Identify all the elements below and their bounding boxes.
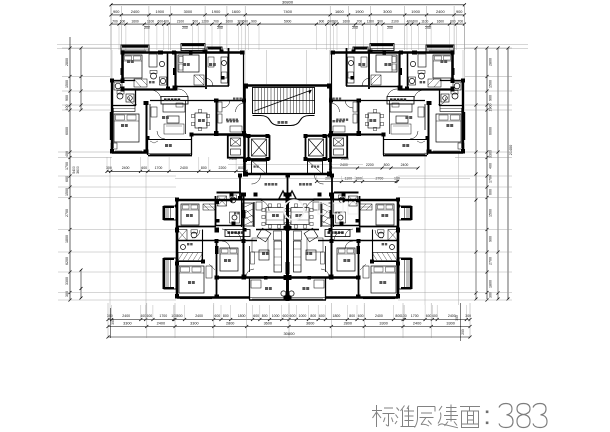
svg-text:1600: 1600 — [335, 9, 344, 14]
svg-text:900: 900 — [489, 236, 493, 242]
svg-text:6000: 6000 — [489, 127, 493, 135]
svg-text:900: 900 — [65, 95, 69, 101]
svg-text:300: 300 — [455, 315, 459, 321]
svg-text:200: 200 — [182, 26, 188, 30]
svg-text:300: 300 — [333, 19, 339, 23]
svg-text:400: 400 — [140, 314, 146, 318]
svg-text:2400: 2400 — [340, 163, 348, 167]
svg-text:600: 600 — [141, 166, 147, 170]
svg-text:1600: 1600 — [131, 19, 139, 23]
svg-text:1100: 1100 — [147, 19, 154, 23]
svg-text:2200: 2200 — [366, 163, 374, 167]
svg-text:3300: 3300 — [489, 150, 493, 158]
svg-text:3000: 3000 — [184, 9, 193, 14]
svg-text:600: 600 — [146, 314, 152, 318]
svg-text:2100: 2100 — [391, 19, 399, 23]
svg-text:1100: 1100 — [421, 19, 428, 23]
svg-text:700: 700 — [112, 19, 118, 23]
svg-text:2400: 2400 — [122, 166, 130, 170]
svg-text:6200: 6200 — [65, 257, 69, 265]
svg-text:2800: 2800 — [489, 58, 493, 66]
svg-text:300: 300 — [489, 292, 493, 298]
svg-text:600: 600 — [412, 19, 418, 23]
svg-text:600: 600 — [214, 314, 220, 318]
svg-text:2400: 2400 — [131, 9, 140, 14]
svg-text:1500: 1500 — [65, 80, 69, 88]
svg-text:1900: 1900 — [212, 9, 221, 14]
svg-text:700: 700 — [357, 19, 363, 23]
svg-text:200: 200 — [352, 26, 358, 30]
svg-text:1500: 1500 — [489, 209, 493, 217]
svg-text:1700: 1700 — [155, 166, 163, 170]
svg-text:2400: 2400 — [401, 163, 409, 167]
svg-text:3600: 3600 — [306, 322, 314, 326]
svg-text:800: 800 — [262, 314, 268, 318]
svg-text:800: 800 — [310, 314, 316, 318]
svg-text:2100: 2100 — [177, 19, 185, 23]
svg-text:200: 200 — [387, 26, 393, 30]
svg-text:900: 900 — [113, 9, 120, 14]
svg-text:21400: 21400 — [509, 145, 513, 156]
svg-text:5400: 5400 — [72, 166, 76, 174]
svg-text:2400: 2400 — [122, 314, 130, 318]
svg-text:1900: 1900 — [489, 104, 493, 112]
svg-text:600: 600 — [65, 176, 69, 182]
svg-text:200: 200 — [461, 329, 465, 335]
svg-text:3300: 3300 — [446, 322, 454, 326]
svg-text:600: 600 — [426, 314, 432, 318]
svg-text:900: 900 — [489, 95, 493, 101]
svg-text:30800: 30800 — [283, 331, 295, 336]
svg-text:2800: 2800 — [344, 322, 352, 326]
svg-text:100: 100 — [401, 314, 407, 318]
svg-text:2800: 2800 — [65, 58, 69, 66]
svg-text:400: 400 — [163, 19, 169, 23]
svg-text:3300: 3300 — [379, 322, 387, 326]
svg-text:1000: 1000 — [299, 314, 307, 318]
svg-text:600: 600 — [120, 19, 126, 23]
svg-text:3000: 3000 — [383, 9, 392, 14]
svg-text:200: 200 — [425, 26, 431, 30]
svg-text:800: 800 — [223, 314, 229, 318]
svg-text:1900: 1900 — [355, 9, 364, 14]
svg-text:2400: 2400 — [375, 314, 383, 318]
svg-text:600: 600 — [450, 19, 456, 23]
svg-text:800: 800 — [349, 314, 355, 318]
svg-text:500: 500 — [193, 19, 199, 23]
svg-text:800: 800 — [238, 166, 244, 170]
svg-text:800: 800 — [201, 166, 207, 170]
svg-text:600: 600 — [319, 314, 325, 318]
svg-text:300: 300 — [465, 314, 471, 318]
svg-text:2200: 2200 — [219, 166, 227, 170]
svg-text:3300: 3300 — [123, 322, 131, 326]
svg-text:600: 600 — [282, 314, 288, 318]
svg-text:1700: 1700 — [65, 162, 69, 170]
svg-text:1800: 1800 — [65, 235, 69, 243]
svg-text:1700: 1700 — [411, 314, 419, 318]
svg-text:600: 600 — [290, 314, 296, 318]
svg-text:2800: 2800 — [226, 322, 234, 326]
svg-text:900: 900 — [319, 19, 325, 23]
svg-text:1900: 1900 — [411, 9, 420, 14]
svg-text:1600: 1600 — [226, 19, 234, 23]
svg-text:300: 300 — [111, 319, 115, 325]
svg-text:1600: 1600 — [437, 19, 445, 23]
svg-text:700: 700 — [458, 19, 464, 23]
svg-text:800: 800 — [384, 163, 390, 167]
svg-text:1900: 1900 — [155, 9, 164, 14]
svg-text:30800: 30800 — [282, 0, 294, 4]
svg-text:500: 500 — [377, 19, 383, 23]
svg-text:2400: 2400 — [436, 9, 445, 14]
svg-text:1700: 1700 — [159, 314, 167, 318]
svg-text:2400: 2400 — [413, 322, 421, 326]
svg-text:2400: 2400 — [180, 166, 188, 170]
svg-text:800: 800 — [177, 314, 183, 318]
svg-text:3300: 3300 — [190, 322, 198, 326]
svg-text:2700: 2700 — [489, 257, 493, 265]
svg-text:2400: 2400 — [157, 322, 165, 326]
svg-text:2400: 2400 — [195, 314, 203, 318]
svg-text:1500: 1500 — [489, 80, 493, 88]
svg-text:5000: 5000 — [284, 19, 292, 23]
svg-text:600: 600 — [489, 189, 493, 195]
svg-text:300: 300 — [65, 291, 69, 297]
svg-text:1000: 1000 — [272, 314, 280, 318]
svg-text:7400: 7400 — [283, 9, 292, 14]
svg-text:2700: 2700 — [65, 209, 69, 217]
svg-text:3600: 3600 — [264, 322, 272, 326]
svg-text:900: 900 — [456, 9, 463, 14]
svg-text:1800: 1800 — [238, 314, 246, 318]
svg-text:600: 600 — [253, 314, 259, 318]
svg-text:400: 400 — [65, 105, 69, 111]
svg-text:400: 400 — [432, 314, 438, 318]
svg-text:900: 900 — [251, 19, 257, 23]
svg-text:1600: 1600 — [343, 19, 351, 23]
svg-text:6000: 6000 — [65, 127, 69, 135]
svg-text:1800: 1800 — [333, 314, 341, 318]
svg-text:700: 700 — [213, 19, 219, 23]
svg-text:600: 600 — [358, 314, 364, 318]
svg-text:1800: 1800 — [489, 280, 493, 288]
svg-text:3600: 3600 — [76, 166, 80, 174]
svg-text:1500: 1500 — [65, 188, 69, 196]
svg-text:3300: 3300 — [65, 277, 69, 285]
svg-text:1600: 1600 — [232, 9, 241, 14]
svg-text:400: 400 — [489, 163, 493, 169]
